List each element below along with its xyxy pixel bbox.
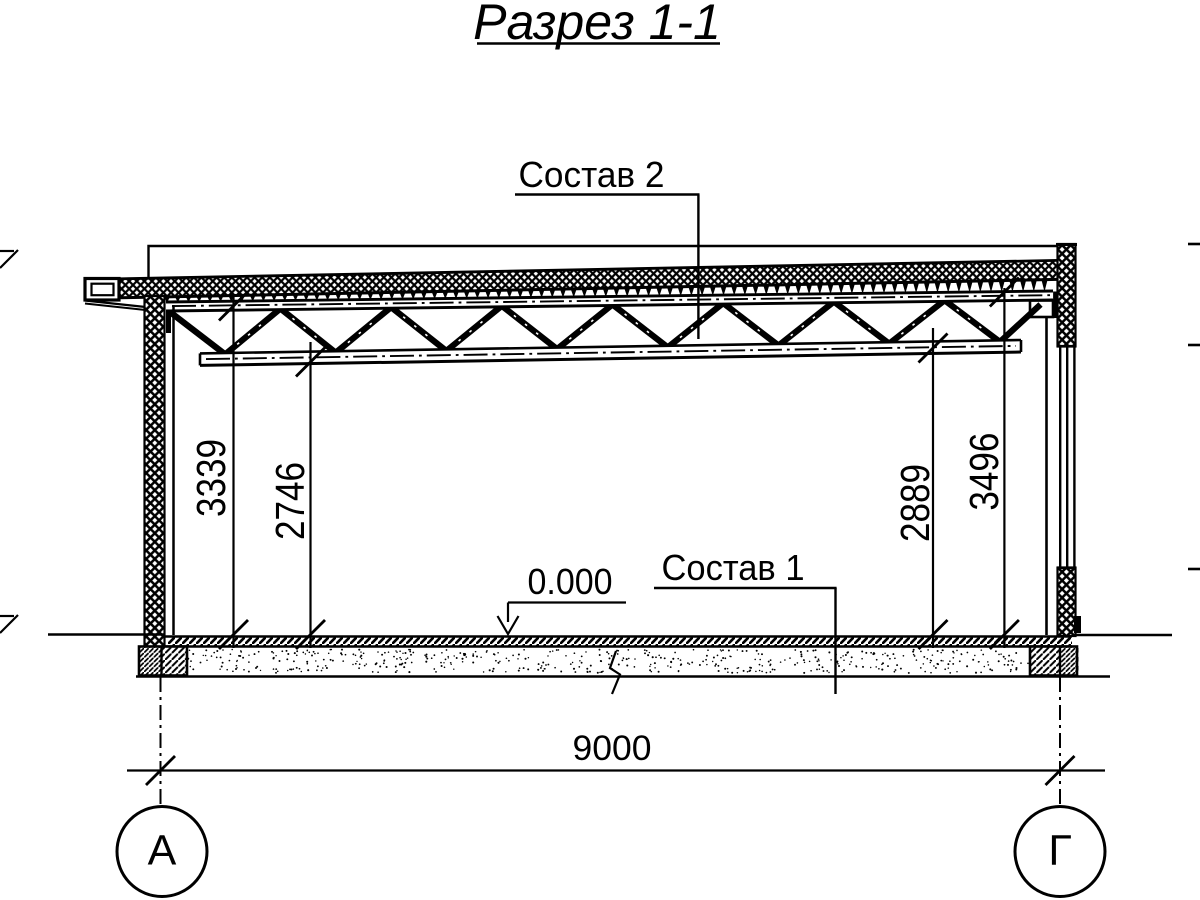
svg-text:А: А	[148, 827, 177, 875]
svg-text:2746: 2746	[267, 462, 313, 540]
svg-text:2889: 2889	[892, 464, 938, 542]
svg-text:Г: Г	[1048, 827, 1071, 875]
svg-text:0.000: 0.000	[528, 561, 613, 602]
svg-text:Состав 1: Состав 1	[662, 547, 805, 588]
svg-text:3496: 3496	[961, 433, 1007, 511]
svg-text:9000: 9000	[573, 729, 652, 768]
svg-text:3339: 3339	[188, 439, 234, 517]
svg-text:Состав 2: Состав 2	[519, 154, 665, 195]
